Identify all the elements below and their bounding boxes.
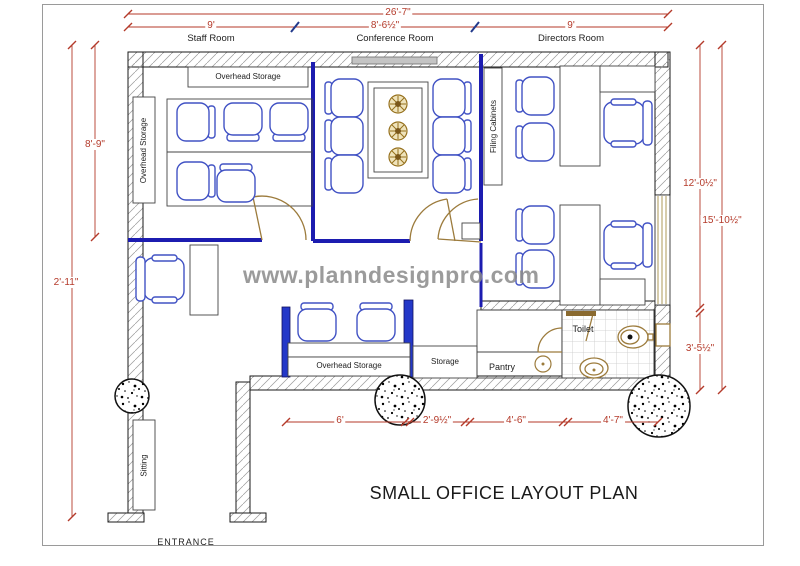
label-overhead-storage-bottom: Overhead Storage (316, 361, 381, 370)
room-label-staff: Staff Room (187, 33, 234, 44)
label-overhead-storage-top: Overhead Storage (215, 72, 280, 81)
page-title: SMALL OFFICE LAYOUT PLAN (370, 483, 639, 504)
pantry-door (538, 328, 562, 352)
lobby-bench (288, 343, 410, 357)
label-filing-cabinets: Filing Cabinets (484, 68, 502, 185)
room-label-conference: Conference Room (356, 33, 433, 44)
director-desk-lower (560, 205, 600, 305)
label-entrance: ENTRANCE (157, 537, 215, 547)
room-label-directors: Directors Room (538, 33, 604, 44)
floor-plan-page: 26'-7" 9' 8'-6½" 9' Staff Room Conferenc… (0, 0, 800, 566)
label-sitting: Sitting (133, 420, 155, 510)
sideboard (352, 57, 437, 64)
staff-door (253, 196, 306, 240)
plants (389, 95, 407, 166)
dim-top-directors: 9' (565, 20, 576, 31)
toilet-sill (656, 324, 670, 346)
dim-right-total: 15'-10½" (700, 215, 743, 226)
dim-top-staff: 9' (205, 20, 216, 31)
dim-top-conference: 8'-6½" (369, 20, 401, 31)
director-desk-upper (560, 66, 600, 166)
conference-door (410, 199, 455, 241)
dim-bottom-3: 4'-6" (504, 415, 528, 426)
window (655, 195, 670, 305)
dim-bottom-1: 6' (334, 415, 345, 426)
dim-right-lower: 3'-5½" (684, 343, 716, 354)
label-storage: Storage (431, 357, 459, 366)
dim-right-upper: 12'-0½" (681, 178, 719, 189)
toilet-door-header (566, 311, 596, 316)
label-overhead-storage-left: Overhead Storage (133, 97, 155, 203)
dim-top-total: 26'-7" (383, 7, 412, 18)
reception-desk (190, 245, 218, 315)
dim-left-staff-depth: 8'-9" (83, 139, 107, 150)
label-pantry: Pantry (489, 362, 515, 372)
dim-bottom-2: 2'-9½" (421, 415, 453, 426)
toilet-room (535, 310, 670, 378)
watermark: www.planndesignpro.com (243, 262, 539, 289)
dim-bottom-4: 4'-7" (601, 415, 625, 426)
label-toilet: Toilet (572, 324, 593, 334)
dim-left-total: 2'-11" (52, 277, 81, 288)
